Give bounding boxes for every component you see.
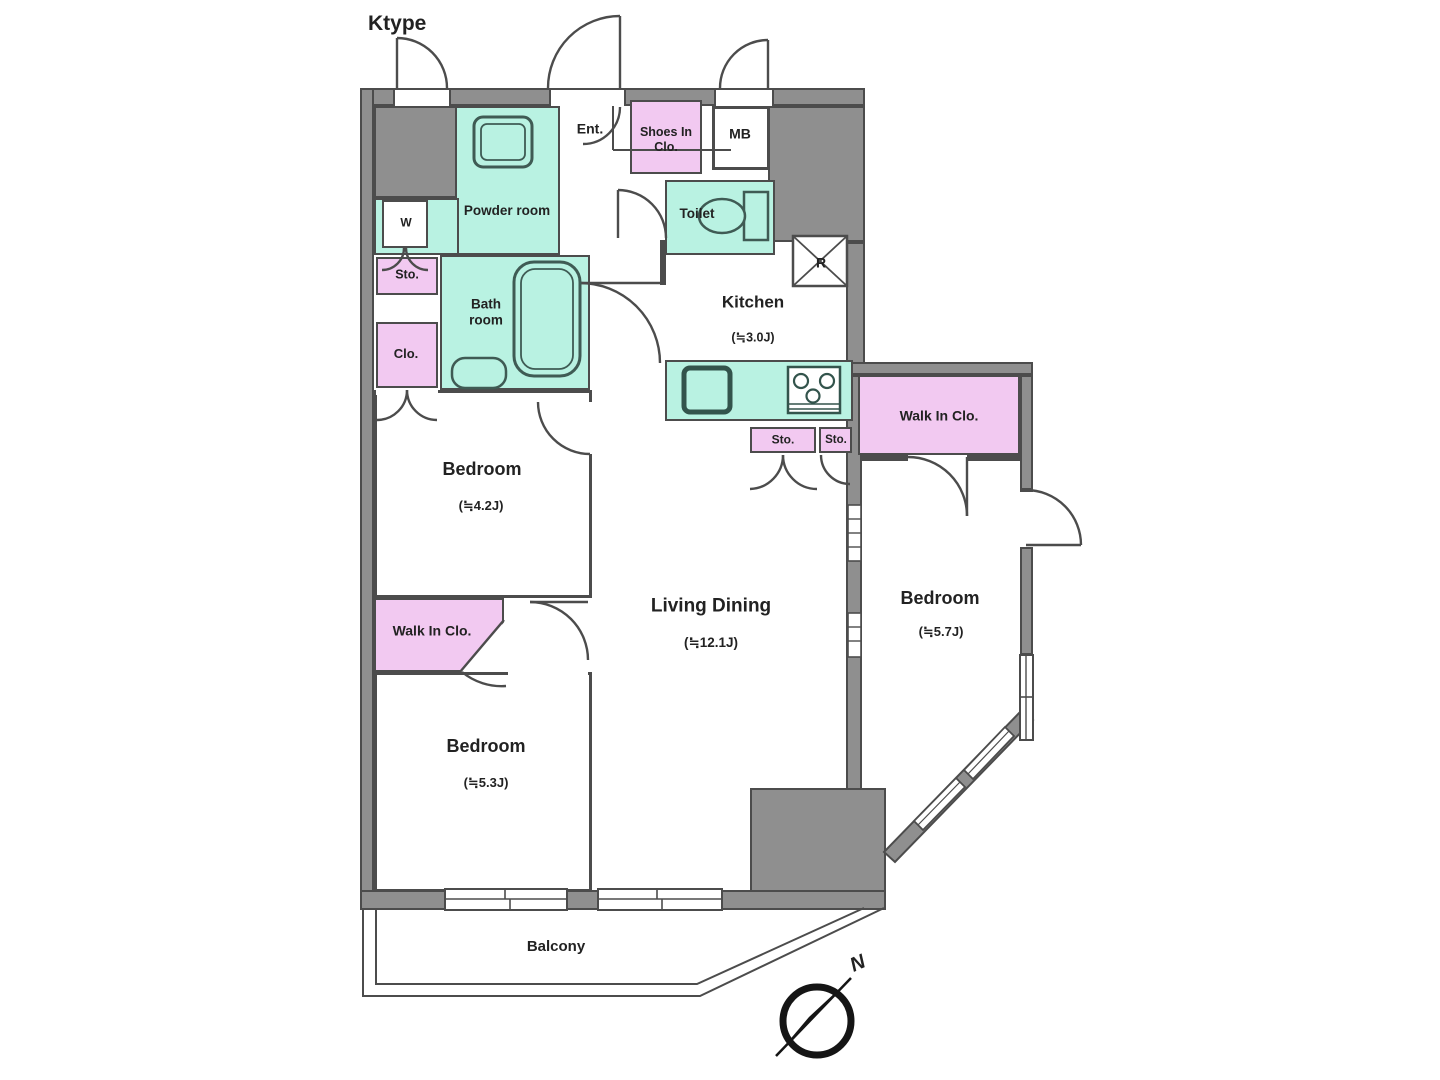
door-gap-closet-left [376, 388, 438, 395]
wall-right-lower [1020, 545, 1033, 655]
label-balcony: Balcony [527, 938, 585, 956]
label-bedroom-right-size: (≒5.7J) [919, 624, 964, 640]
wall-bottom [360, 890, 886, 910]
label-toilet: Toilet [680, 206, 715, 222]
wall-left [360, 88, 374, 910]
door-opening-top-left [393, 90, 451, 106]
wall-core-block [768, 106, 865, 242]
label-kitchen-size: (≒3.0J) [731, 330, 774, 345]
window-bedroom-right [1020, 655, 1033, 740]
wall-kitchen-right [846, 242, 865, 364]
door-gap-bedroom2 [508, 670, 588, 678]
wall-diagonal [884, 710, 1033, 862]
door-gap-bedroom1 [587, 402, 597, 454]
door-opening-right [1020, 490, 1033, 549]
wall-kitchen-left [660, 240, 666, 285]
plan-title: Ktype [368, 12, 426, 36]
label-storage-left: Sto. [395, 267, 419, 282]
label-storage-kitchen-2: Sto. [825, 433, 847, 447]
compass-north-label: N [847, 951, 870, 978]
wall-topleft-block [374, 106, 458, 198]
balcony-outline [363, 908, 884, 996]
wall-bedroom-right-top-a [862, 455, 908, 461]
label-bedroom-lower-left-size: (≒5.3J) [464, 775, 509, 791]
door-opening-mb [714, 90, 774, 106]
label-kitchen: Kitchen [722, 293, 784, 314]
label-closet-left: Clo. [394, 346, 419, 362]
wall-right-upper [1020, 375, 1033, 490]
label-washer: W [400, 216, 411, 231]
room-powder [455, 106, 560, 255]
compass-icon [776, 978, 851, 1056]
label-bedroom-upper-left-size: (≒4.2J) [459, 498, 504, 514]
label-refrigerator: R [816, 254, 826, 271]
label-living-dining: Living Dining [651, 594, 771, 617]
room-bedroom-upper-left [374, 390, 592, 598]
label-entrance: Ent. [577, 120, 603, 137]
label-bedroom-upper-left: Bedroom [442, 459, 521, 481]
label-bedroom-right: Bedroom [900, 588, 979, 610]
label-storage-kitchen-1: Sto. [772, 433, 795, 448]
label-walk-in-closet-left: Walk In Clo. [392, 622, 472, 639]
label-meter-box: MB [729, 125, 751, 142]
wall-wic-top [846, 362, 1033, 375]
label-bathroom: Bath room [457, 297, 515, 330]
kitchen-counter [665, 360, 853, 421]
label-bedroom-lower-left: Bedroom [446, 736, 525, 758]
label-walk-in-closet-right: Walk In Clo. [893, 407, 985, 424]
label-shoes-closet: Shoes In Clo. [635, 125, 697, 156]
wall-bottom-right-mass [750, 788, 886, 905]
wall-bedroom-right-top-b [967, 455, 1020, 461]
door-opening-entrance [549, 90, 626, 106]
label-living-dining-size: (≒12.1J) [684, 635, 738, 651]
floorplan: Ktype [0, 0, 1440, 1080]
label-powder-room: Powder room [463, 203, 551, 219]
